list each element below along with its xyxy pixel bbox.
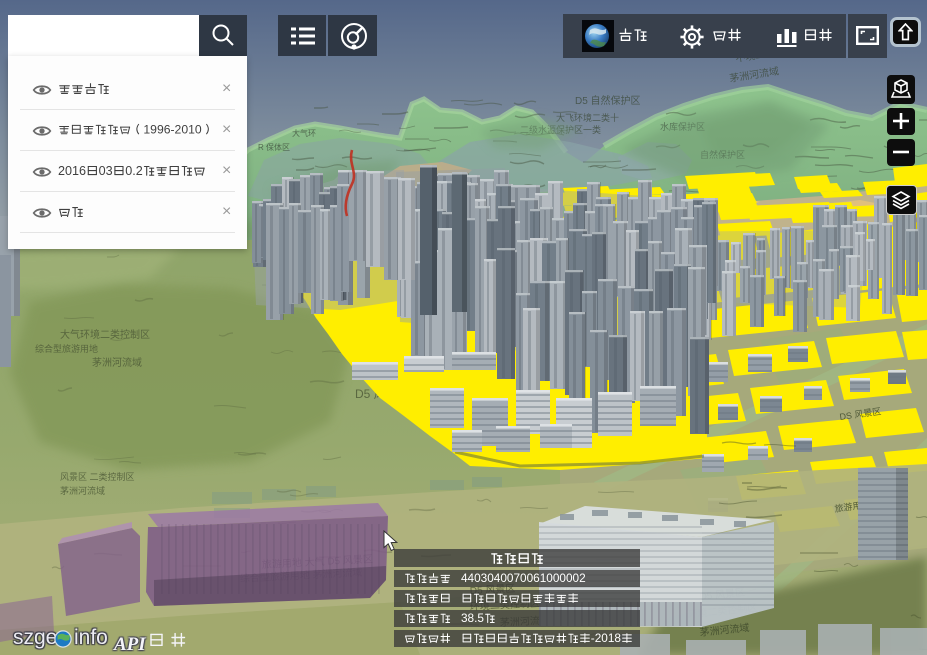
svg-text:03: 03	[99, 164, 113, 178]
svg-text:综合型旅游用地: 综合型旅游用地	[35, 343, 98, 354]
svg-text:大气环: 大气环	[292, 128, 316, 138]
svg-text:-2018: -2018	[591, 632, 622, 645]
svg-text:D5 自然保护区: D5 自然保护区	[575, 94, 641, 107]
svg-text:R 保体区: R 保体区	[258, 142, 290, 152]
svg-text:大飞环境二类十: 大飞环境二类十	[556, 112, 619, 123]
svg-text:4403040070061000002: 4403040070061000002	[461, 572, 586, 585]
svg-text:2016: 2016	[58, 164, 86, 178]
svg-text:0.2: 0.2	[125, 164, 143, 178]
svg-text:风景区 二类控制区: 风景区 二类控制区	[60, 471, 135, 482]
svg-text:大气环境二类控制区: 大气环境二类控制区	[60, 328, 150, 341]
svg-text:1996-2010: 1996-2010	[143, 123, 202, 137]
svg-text:茅洲河流域: 茅洲河流域	[60, 485, 105, 496]
svg-text:茅洲河流域: 茅洲河流域	[92, 356, 142, 369]
svg-text:38.5: 38.5	[461, 612, 484, 625]
